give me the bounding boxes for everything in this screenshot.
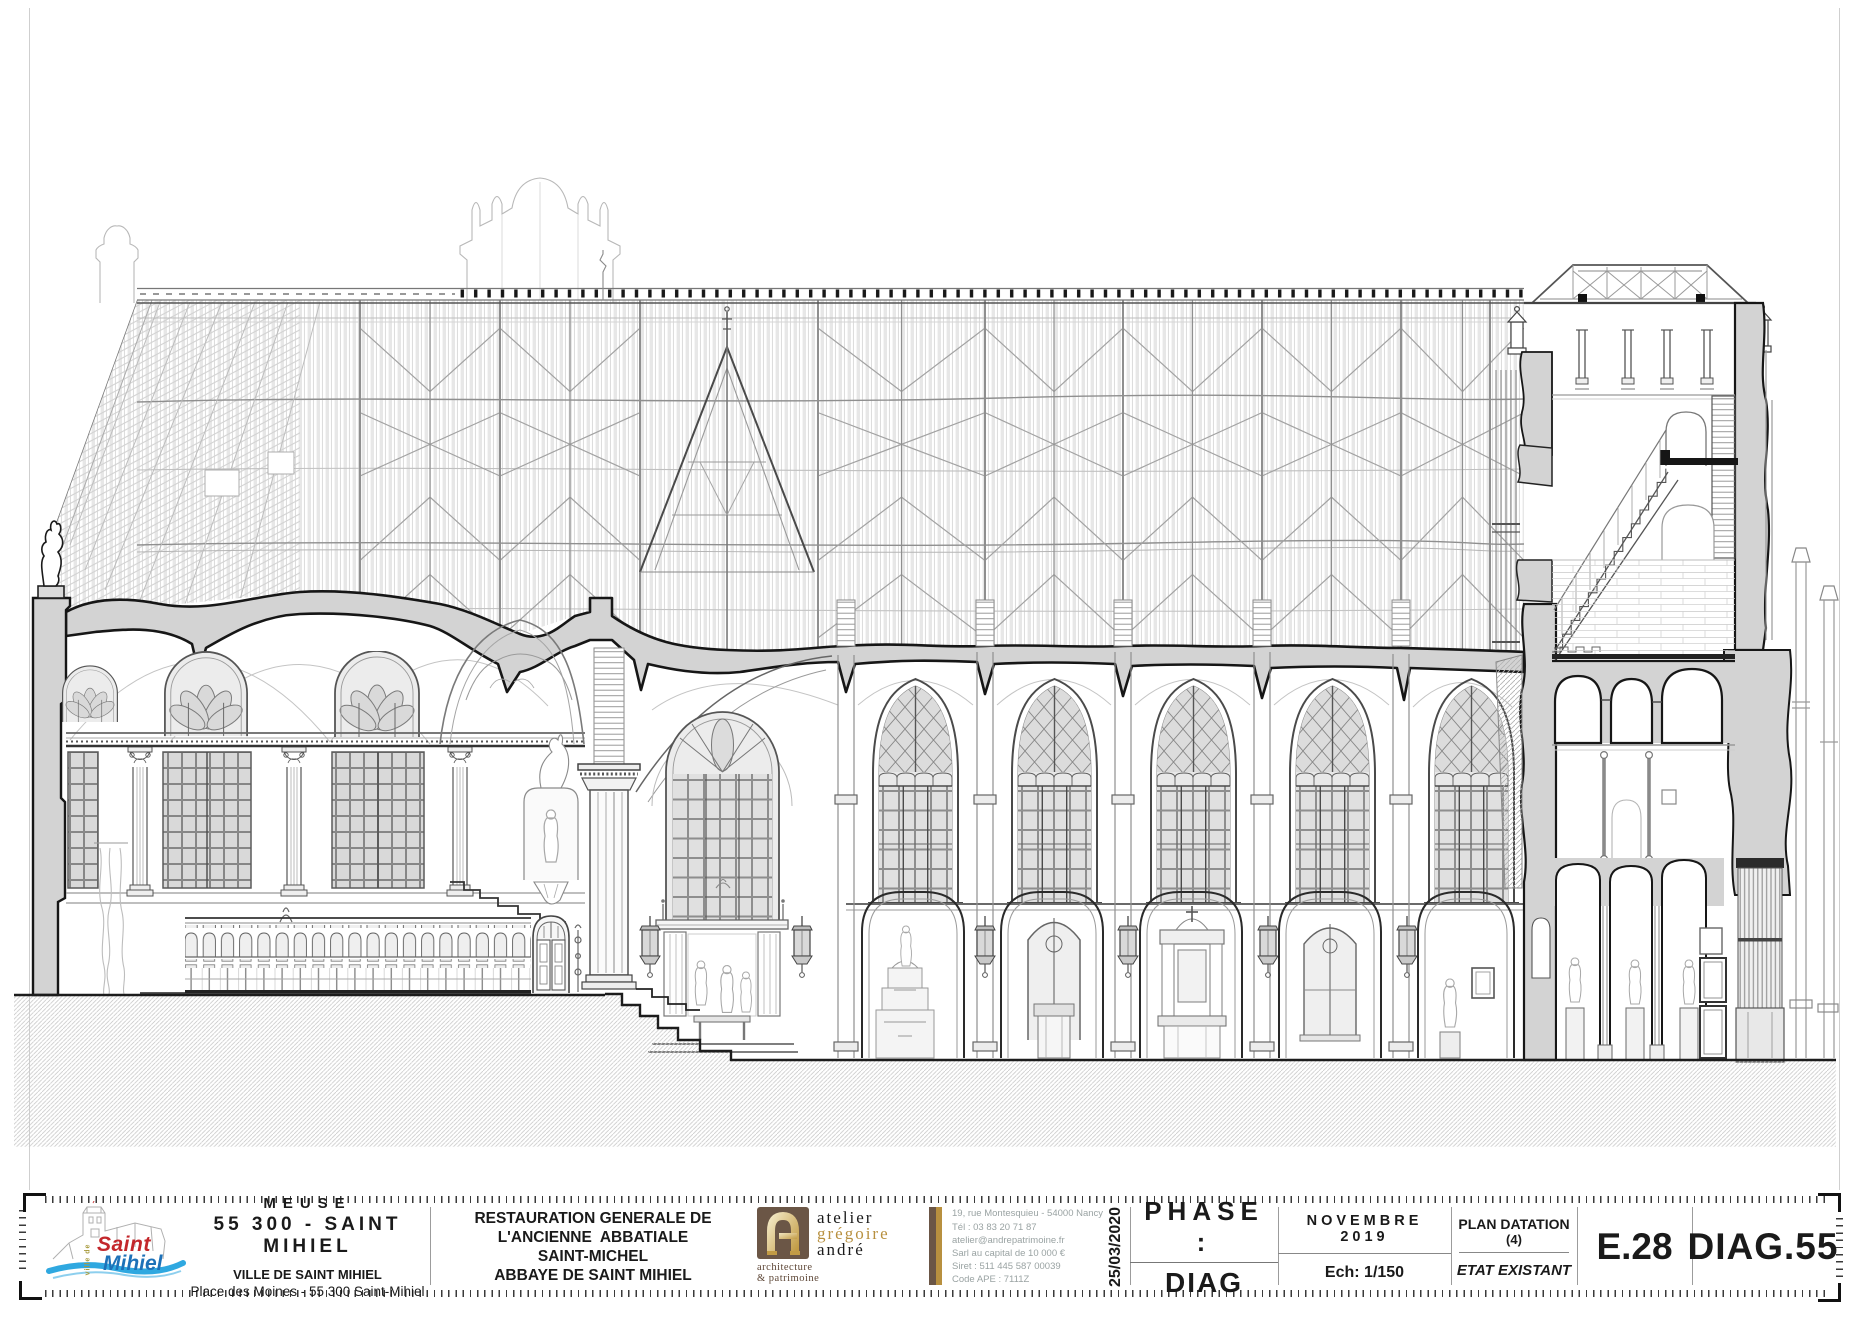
contact-divider-bar xyxy=(929,1207,942,1285)
project-line-1: RESTAURATION GENERALE DE xyxy=(474,1209,711,1228)
saint-mihiel-logo: ville de Saint Mihiel xyxy=(43,1201,193,1293)
phase-value: DIAG xyxy=(1165,1267,1243,1299)
client-cell: MEUSE 55 300 - SAINT MIHIEL VILLE DE SAI… xyxy=(185,1205,430,1289)
corner-bracket-bottom-left xyxy=(19,1281,42,1300)
registration-ticks-left xyxy=(19,1207,26,1269)
arch-icon xyxy=(757,1207,809,1259)
belfry-openings xyxy=(1552,330,1735,399)
hanging-lamp xyxy=(1258,916,1278,977)
sepulchre-monument xyxy=(876,961,934,1058)
issue-cell: NOVEMBRE 2019 Ech: 1/150 xyxy=(1278,1205,1451,1289)
tower-mid-level xyxy=(1552,745,1735,862)
datation-title: PLAN DATATION xyxy=(1458,1216,1569,1232)
tribune-arcade xyxy=(1552,661,1735,743)
pinnacles xyxy=(1508,305,1771,354)
choir-door xyxy=(533,916,569,993)
tower-east-wall xyxy=(1735,303,1769,650)
choir-lower-windows xyxy=(66,752,585,903)
tower-lower-arcade xyxy=(1552,858,1726,1060)
spiral-stair-shaft xyxy=(1712,396,1735,558)
logo-word-mihiel: Mihiel xyxy=(103,1252,163,1276)
contact-line-3: atelier@andrepatrimoine.fr xyxy=(952,1235,1103,1247)
nave-gothic-window xyxy=(1285,679,1380,903)
date-stamp: 25/03/2020 xyxy=(1102,1205,1130,1289)
candelabrum xyxy=(575,925,581,992)
contact-line-5: Siret : 511 445 587 00039 xyxy=(952,1261,1103,1273)
phase-cell: PHASE : DIAG xyxy=(1130,1205,1278,1289)
tower-door xyxy=(1666,412,1706,466)
architect-word-3: andré xyxy=(817,1242,890,1258)
nave-gothic-window xyxy=(1146,679,1241,903)
hanging-lamp xyxy=(975,916,995,977)
hanging-lamp xyxy=(792,916,812,977)
client-region: MEUSE xyxy=(263,1195,351,1212)
sheet-index-cell: E.28 xyxy=(1577,1205,1692,1289)
datation-cell: PLAN DATATION (4) ETAT EXISTANT xyxy=(1451,1205,1577,1289)
architect-contact: 19, rue Montesquieu - 54000 Nancy Tél : … xyxy=(929,1207,1129,1287)
architect-tagline-1: architecture xyxy=(757,1262,827,1273)
baroque-retable xyxy=(1158,906,1226,1058)
choir-fan-window xyxy=(63,666,118,722)
tower-west-pier xyxy=(1520,604,1556,1060)
tower-west-wall-upper xyxy=(1520,352,1552,455)
project-line-3: SAINT-MICHEL xyxy=(538,1247,648,1266)
drawing-scale: Ech: 1/150 xyxy=(1325,1264,1404,1282)
transition-window xyxy=(652,712,792,929)
hanging-lamp xyxy=(1118,916,1138,977)
sheet-index: E.28 xyxy=(1596,1226,1672,1268)
nave-gothic-window xyxy=(868,679,963,903)
tower-west-mullions xyxy=(1492,370,1520,650)
contact-line-4: Sarl au capital de 10 000 € xyxy=(952,1248,1103,1260)
sheet-number-cell: DIAG.55 xyxy=(1692,1205,1834,1289)
choir-fan-window xyxy=(335,651,419,737)
logo-ville-de: ville de xyxy=(85,1243,92,1275)
tower-roof xyxy=(1524,265,1756,303)
architect-tagline-2: & patrimoine xyxy=(757,1273,827,1284)
datation-status: ETAT EXISTANT xyxy=(1457,1262,1571,1279)
corinthian-column xyxy=(281,747,307,896)
west-wall-poche xyxy=(33,598,70,995)
statue-niche xyxy=(524,735,578,904)
wall-frames xyxy=(1700,928,1726,1058)
project-line-4: ABBAYE DE SAINT MIHIEL xyxy=(494,1266,692,1285)
contact-line-1: 19, rue Montesquieu - 54000 Nancy xyxy=(952,1208,1103,1220)
chapel-gothic-window xyxy=(1028,918,1080,1058)
corinthian-column xyxy=(447,747,473,896)
client-org: VILLE DE SAINT MIHIEL xyxy=(233,1267,382,1282)
client-city: 55 300 - SAINT MIHIEL xyxy=(185,1214,430,1258)
tower-west-blob1 xyxy=(1518,445,1552,486)
project-title-cell: RESTAURATION GENERALE DE L'ANCIENNE ABBA… xyxy=(430,1205,756,1289)
tower-masonry xyxy=(1552,560,1735,659)
nave-gothic-window xyxy=(1007,679,1102,903)
title-block: ville de Saint Mihiel MEUSE 55 300 - SAI… xyxy=(29,1195,1839,1299)
contact-line-2: Tél : 03 83 20 71 87 xyxy=(952,1222,1103,1234)
project-line-2: L'ANCIENNE ABBATIALE xyxy=(498,1228,689,1247)
tower-west-blob2 xyxy=(1517,560,1552,602)
sheet-number: DIAG.55 xyxy=(1688,1226,1839,1268)
datation-index: (4) xyxy=(1459,1232,1569,1253)
client-address: Place des Moines - 55 300 Saint-Mihiel xyxy=(190,1284,424,1299)
tower-section xyxy=(1492,265,1838,1062)
nave-windows xyxy=(846,679,1524,910)
architect-logo: atelier grégoire andré architecture & pa… xyxy=(757,1204,927,1290)
issue-date: NOVEMBRE 2019 xyxy=(1278,1213,1451,1254)
small-finial-silhouette xyxy=(96,226,138,303)
phase-label: PHASE : xyxy=(1130,1196,1278,1263)
drawing-sheet: ville de Saint Mihiel MEUSE 55 300 - SAI… xyxy=(0,0,1862,1317)
hanging-lamp xyxy=(1397,916,1417,977)
choir-stalls xyxy=(185,908,581,993)
wall-texture xyxy=(94,843,128,996)
background-tower-silhouettes xyxy=(96,178,620,303)
organ-pipes xyxy=(1736,858,1784,1062)
choir-entablature xyxy=(66,733,585,746)
corinthian-column xyxy=(127,747,153,896)
contact-line-6: Code APE : 7111Z xyxy=(952,1274,1103,1286)
chapel-two-light-window xyxy=(1300,924,1360,1041)
architectural-section-drawing xyxy=(0,0,1862,1190)
choir-fan-window xyxy=(165,652,247,736)
